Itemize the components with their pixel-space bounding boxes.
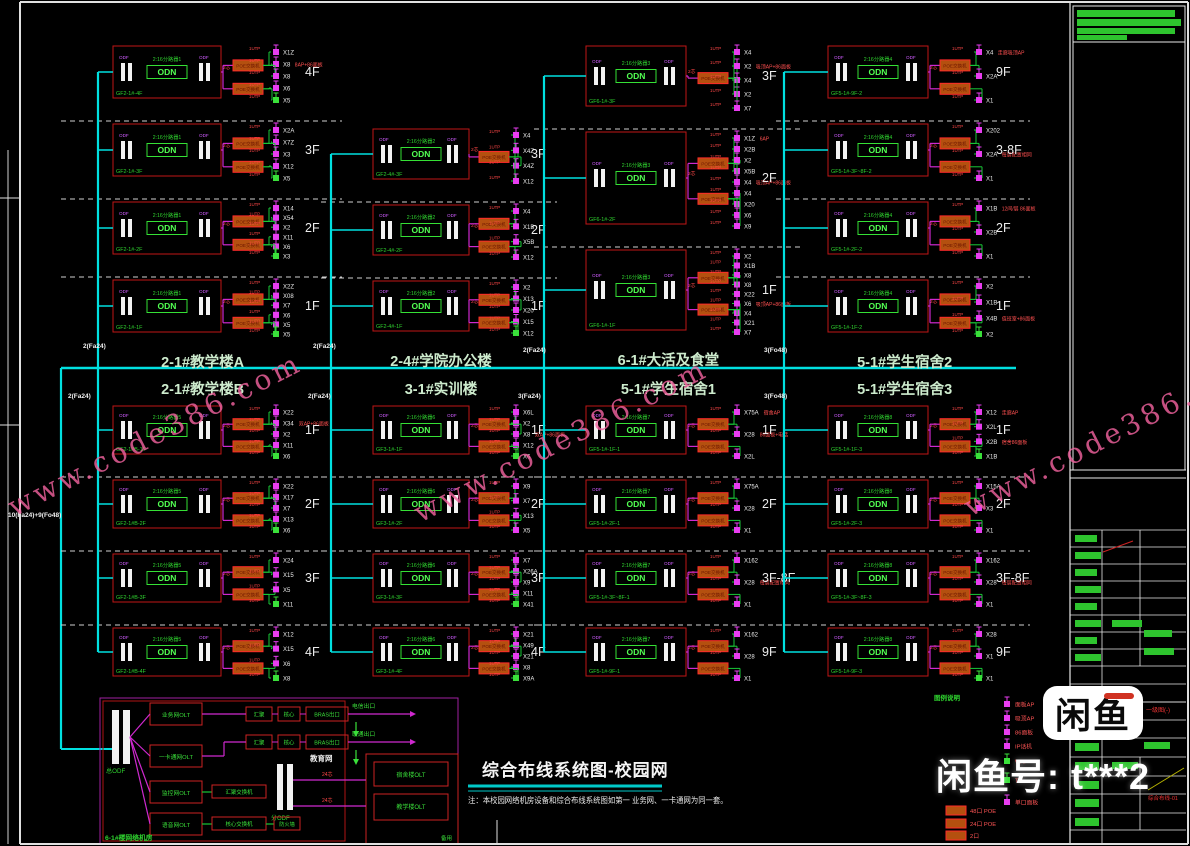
svg-text:POE交换机: POE交换机	[236, 140, 260, 147]
svg-text:2-1#教学楼B: 2-1#教学楼B	[161, 380, 244, 398]
svg-text:1UTP: 1UTP	[952, 576, 963, 581]
svg-text:5-1#学生宿舍1: 5-1#学生宿舍1	[621, 380, 716, 398]
svg-text:1UTP: 1UTP	[489, 417, 500, 422]
svg-text:GF5-1#-1F-3: GF5-1#-1F-3	[831, 447, 862, 453]
svg-text:1F: 1F	[996, 423, 1011, 437]
svg-text:2-1#教学楼A: 2-1#教学楼A	[161, 353, 245, 371]
svg-text:1UTP: 1UTP	[710, 60, 721, 65]
svg-text:GF5-1#-3F~8F-3: GF5-1#-3F~8F-3	[831, 595, 872, 601]
svg-text:2:16分路器7: 2:16分路器7	[622, 413, 651, 421]
svg-text:X9: X9	[523, 581, 531, 587]
svg-text:2:16分路器4: 2:16分路器4	[864, 211, 893, 219]
svg-text:2:16分路器8: 2:16分路器8	[864, 487, 893, 495]
svg-text:ODN: ODN	[158, 573, 177, 583]
svg-text:1UTP: 1UTP	[710, 598, 721, 603]
svg-text:2:16分路器2: 2:16分路器2	[407, 289, 436, 297]
svg-text:X08: X08	[283, 294, 294, 300]
svg-text:1UTP: 1UTP	[952, 296, 963, 301]
svg-text:ODF: ODF	[447, 635, 457, 640]
svg-text:86面板: 86面板	[1015, 729, 1033, 737]
svg-text:1UTP: 1UTP	[249, 46, 260, 51]
svg-text:2芯: 2芯	[471, 146, 479, 153]
svg-text:1UTP: 1UTP	[710, 198, 721, 203]
svg-text:9F: 9F	[996, 645, 1011, 659]
xianyu-account: 闲鱼号: t***2	[936, 748, 1150, 800]
svg-text:1UTP: 1UTP	[249, 554, 260, 559]
svg-text:1UTP: 1UTP	[489, 524, 500, 529]
svg-text:汇聚交换机: 汇聚交换机	[226, 788, 254, 796]
svg-text:1UTP: 1UTP	[710, 74, 721, 79]
svg-text:X2L: X2L	[744, 455, 755, 461]
svg-text:1UTP: 1UTP	[249, 221, 260, 226]
svg-text:1UTP: 1UTP	[249, 58, 260, 63]
svg-text:2-4#学院办公楼: 2-4#学院办公楼	[390, 352, 492, 370]
svg-text:1UTP: 1UTP	[249, 417, 260, 422]
svg-text:POE交换机: POE交换机	[943, 320, 967, 327]
svg-text:X5: X5	[283, 177, 291, 183]
svg-text:ODF: ODF	[906, 487, 916, 492]
svg-text:2:16分路器8: 2:16分路器8	[864, 635, 893, 643]
svg-text:1UTP: 1UTP	[952, 94, 963, 99]
svg-text:ODF: ODF	[199, 413, 209, 418]
svg-text:X9A: X9A	[523, 677, 534, 683]
svg-text:图例说明: 图例说明	[934, 693, 961, 702]
svg-text:防火墙: 防火墙	[279, 820, 295, 828]
svg-text:2芯: 2芯	[688, 68, 696, 75]
svg-text:ODF: ODF	[664, 635, 674, 640]
svg-text:X15: X15	[523, 320, 534, 326]
svg-text:1UTP: 1UTP	[489, 672, 500, 677]
svg-text:ODF: ODF	[447, 213, 457, 218]
svg-text:X13: X13	[523, 514, 534, 520]
svg-text:1UTP: 1UTP	[489, 439, 500, 444]
svg-text:X8: X8	[523, 666, 531, 672]
svg-text:3F-8F: 3F-8F	[996, 571, 1030, 585]
svg-text:ODF: ODF	[664, 59, 674, 64]
svg-text:1UTP: 1UTP	[489, 495, 500, 500]
svg-text:X7Z: X7Z	[283, 141, 294, 147]
svg-text:1UTP: 1UTP	[489, 650, 500, 655]
svg-text:1UTP: 1UTP	[710, 524, 721, 529]
svg-text:X6: X6	[283, 245, 291, 251]
svg-text:总ODF: 总ODF	[106, 767, 125, 775]
svg-text:ODF: ODF	[592, 487, 602, 492]
svg-text:ODF: ODF	[906, 413, 916, 418]
svg-text:X6: X6	[283, 87, 291, 93]
svg-text:吸顶AP+86面板: 吸顶AP+86面板	[756, 301, 791, 308]
svg-text:2(Fa24): 2(Fa24)	[68, 393, 91, 400]
svg-text:1UTP: 1UTP	[952, 650, 963, 655]
svg-text:2芯: 2芯	[471, 222, 479, 229]
svg-text:X24: X24	[283, 559, 294, 565]
svg-text:1F: 1F	[305, 423, 320, 437]
svg-text:2:16分路器1: 2:16分路器1	[153, 289, 182, 297]
svg-text:GF3-1#-4F: GF3-1#-4F	[376, 669, 403, 675]
svg-text:2:16分路器4: 2:16分路器4	[864, 133, 893, 141]
svg-text:GF2-1#-2F: GF2-1#-2F	[116, 247, 143, 253]
svg-text:GF5-1#-3F~8F-1: GF5-1#-3F~8F-1	[589, 595, 630, 601]
svg-text:ODN: ODN	[869, 67, 888, 77]
svg-text:ODF: ODF	[379, 289, 389, 294]
svg-text:1UTP: 1UTP	[489, 281, 500, 286]
svg-text:GF2-1#B-2F: GF2-1#B-2F	[116, 521, 147, 527]
svg-text:2:16分路器6: 2:16分路器6	[407, 635, 436, 643]
svg-text:ODN: ODN	[412, 225, 431, 235]
svg-text:1UTP: 1UTP	[710, 250, 721, 255]
svg-text:1UTP: 1UTP	[249, 280, 260, 285]
svg-text:ODF: ODF	[834, 635, 844, 640]
svg-text:GF2-1#B-3F: GF2-1#B-3F	[116, 595, 147, 601]
svg-text:2芯: 2芯	[688, 170, 696, 177]
svg-text:1UTP: 1UTP	[249, 202, 260, 207]
svg-text:X5: X5	[283, 99, 291, 105]
svg-text:X8: X8	[744, 283, 752, 289]
svg-text:X12: X12	[523, 332, 534, 338]
machine-room-diagram: 总ODF业务网OLT一卡通网OLT监控网OLT语音网OLT汇聚核心BRAS出口电…	[100, 698, 458, 844]
svg-text:2:16分路器6: 2:16分路器6	[407, 413, 436, 421]
svg-text:X5: X5	[283, 323, 291, 329]
svg-text:X1Z: X1Z	[283, 51, 294, 57]
svg-text:1UTP: 1UTP	[710, 143, 721, 148]
svg-text:X28: X28	[744, 507, 755, 513]
svg-text:1UTP: 1UTP	[952, 70, 963, 75]
svg-text:ODF: ODF	[592, 59, 602, 64]
svg-text:ODN: ODN	[412, 149, 431, 159]
svg-text:1UTP: 1UTP	[489, 316, 500, 321]
svg-text:X14: X14	[283, 207, 294, 213]
svg-text:ODF: ODF	[834, 289, 844, 294]
svg-text:1UTP: 1UTP	[952, 172, 963, 177]
svg-text:POE交换机: POE交换机	[482, 297, 506, 304]
svg-text:GF2-1#-1F: GF2-1#-1F	[116, 325, 143, 331]
svg-text:1UTP: 1UTP	[249, 94, 260, 99]
svg-text:X41: X41	[523, 603, 534, 609]
svg-text:ODF: ODF	[119, 289, 129, 294]
svg-text:X22: X22	[744, 293, 755, 299]
svg-text:1UTP: 1UTP	[952, 502, 963, 507]
svg-text:1F: 1F	[762, 423, 777, 437]
svg-text:X2: X2	[283, 226, 291, 232]
svg-text:ODN: ODN	[869, 573, 888, 583]
svg-text:ODF: ODF	[119, 133, 129, 138]
svg-text:X21: X21	[523, 633, 534, 639]
svg-text:1UTP: 1UTP	[489, 304, 500, 309]
svg-text:2芯: 2芯	[223, 422, 231, 429]
svg-text:GF2-1#B-1F: GF2-1#B-1F	[116, 447, 147, 453]
svg-text:1UTP: 1UTP	[249, 309, 260, 314]
svg-text:X12: X12	[523, 444, 534, 450]
svg-text:POE交换机: POE交换机	[943, 218, 967, 225]
svg-text:1UTP: 1UTP	[489, 144, 500, 149]
svg-text:X22: X22	[283, 411, 294, 417]
svg-text:1UTP: 1UTP	[710, 326, 721, 331]
svg-text:2:16分路器5: 2:16分路器5	[153, 413, 182, 421]
svg-text:X4Z: X4Z	[523, 164, 534, 170]
svg-text:2:16分路器3: 2:16分路器3	[622, 59, 651, 67]
svg-text:ODF: ODF	[199, 55, 209, 60]
svg-text:1UTP: 1UTP	[249, 657, 260, 662]
svg-text:1UTP: 1UTP	[952, 480, 963, 485]
svg-text:ODF: ODF	[119, 413, 129, 418]
svg-text:2:16分路器1: 2:16分路器1	[153, 55, 182, 63]
svg-text:1UTP: 1UTP	[710, 650, 721, 655]
svg-text:ODN: ODN	[158, 301, 177, 311]
svg-text:1UTP: 1UTP	[249, 672, 260, 677]
svg-text:综合布线-01: 综合布线-01	[1148, 794, 1178, 802]
svg-text:X21: X21	[744, 321, 755, 327]
svg-text:2(Fa24): 2(Fa24)	[83, 343, 106, 350]
svg-text:X1: X1	[986, 655, 994, 661]
svg-text:POE交换机: POE交换机	[943, 242, 967, 249]
svg-text:1UTP: 1UTP	[489, 129, 500, 134]
svg-text:2芯: 2芯	[223, 644, 231, 651]
svg-text:X2A: X2A	[283, 129, 294, 135]
svg-text:2F: 2F	[762, 171, 777, 185]
svg-text:值班室+86面板: 值班室+86面板	[1002, 316, 1035, 323]
svg-text:ODF: ODF	[199, 211, 209, 216]
svg-text:X28: X28	[744, 655, 755, 661]
svg-text:X28: X28	[986, 633, 997, 639]
svg-text:1UTP: 1UTP	[249, 299, 260, 304]
svg-text:X1: X1	[986, 529, 994, 535]
svg-text:3(Fo48): 3(Fo48)	[764, 347, 787, 354]
svg-text:1UTP: 1UTP	[249, 148, 260, 153]
svg-text:X75A: X75A	[744, 485, 759, 491]
svg-text:GF5-1#-9F-3: GF5-1#-9F-3	[831, 669, 862, 675]
svg-text:X2: X2	[986, 285, 994, 291]
svg-text:X12: X12	[283, 165, 294, 171]
svg-text:汇聚: 汇聚	[254, 711, 265, 719]
svg-text:ODF: ODF	[199, 487, 209, 492]
svg-text:3-8F: 3-8F	[996, 143, 1022, 157]
svg-text:GF2-4#-2F: GF2-4#-2F	[376, 248, 403, 254]
svg-text:X12: X12	[523, 180, 534, 186]
svg-text:2芯: 2芯	[688, 422, 696, 429]
svg-text:ODF: ODF	[664, 413, 674, 418]
svg-text:1UTP: 1UTP	[710, 628, 721, 633]
svg-text:1UTP: 1UTP	[489, 480, 500, 485]
svg-text:X7: X7	[283, 304, 291, 310]
svg-text:走廊吸顶AP: 走廊吸顶AP	[998, 50, 1025, 57]
svg-text:1UTP: 1UTP	[249, 70, 260, 75]
svg-text:1F: 1F	[305, 299, 320, 313]
svg-text:48口 POE: 48口 POE	[970, 808, 996, 815]
svg-text:1UTP: 1UTP	[249, 231, 260, 236]
svg-text:ODN: ODN	[627, 71, 646, 81]
svg-text:X54: X54	[283, 216, 294, 222]
svg-text:GF5-1#-1F-1: GF5-1#-1F-1	[589, 447, 620, 453]
svg-text:1UTP: 1UTP	[249, 524, 260, 529]
svg-text:ODN: ODN	[158, 647, 177, 657]
svg-text:GF2-4#-1F: GF2-4#-1F	[376, 324, 403, 330]
svg-text:1UTP: 1UTP	[710, 187, 721, 192]
svg-text:ODN: ODN	[869, 301, 888, 311]
svg-text:X4: X4	[523, 134, 531, 140]
building-7: ODN2:16分路器7ODFODFGF5-1#-1F-12芯POE交换机POE交…	[534, 368, 800, 683]
svg-text:ODN: ODN	[627, 285, 646, 295]
svg-text:X8: X8	[283, 75, 291, 81]
svg-text:2:16分路器7: 2:16分路器7	[622, 561, 651, 569]
svg-text:1UTP: 1UTP	[710, 269, 721, 274]
svg-text:1UTP: 1UTP	[710, 502, 721, 507]
svg-text:X8: X8	[523, 433, 531, 439]
svg-text:2:16分路器1: 2:16分路器1	[153, 133, 182, 141]
svg-text:ODF: ODF	[199, 635, 209, 640]
svg-text:1UTP: 1UTP	[710, 450, 721, 455]
svg-text:X4B: X4B	[986, 317, 997, 323]
svg-text:1UTP: 1UTP	[952, 598, 963, 603]
svg-text:1F: 1F	[762, 283, 777, 297]
svg-text:X1: X1	[744, 677, 752, 683]
svg-text:X9: X9	[744, 225, 752, 231]
svg-text:X4: X4	[986, 51, 994, 57]
svg-text:1UTP: 1UTP	[952, 202, 963, 207]
svg-text:1UTP: 1UTP	[249, 428, 260, 433]
svg-text:1UTP: 1UTP	[489, 220, 500, 225]
svg-text:2芯: 2芯	[930, 570, 938, 577]
svg-text:1UTP: 1UTP	[249, 250, 260, 255]
svg-text:24芯: 24芯	[322, 771, 333, 778]
svg-text:汇聚: 汇聚	[254, 739, 265, 747]
svg-text:X4: X4	[744, 312, 752, 318]
svg-text:GF5-1#-2F-1: GF5-1#-2F-1	[589, 521, 620, 527]
svg-text:X6: X6	[283, 529, 291, 535]
svg-text:X15: X15	[283, 573, 294, 579]
svg-text:1UTP: 1UTP	[710, 288, 721, 293]
svg-text:X11: X11	[523, 592, 534, 598]
svg-text:X7: X7	[523, 559, 531, 565]
svg-text:X17: X17	[283, 496, 294, 502]
svg-text:ODF: ODF	[592, 161, 602, 166]
svg-text:1UTP: 1UTP	[710, 279, 721, 284]
svg-text:ODN: ODN	[158, 67, 177, 77]
svg-text:ODF: ODF	[834, 211, 844, 216]
svg-text:GF5-1#-3F~8F-2: GF5-1#-3F~8F-2	[831, 169, 872, 175]
svg-text:1UTP: 1UTP	[249, 240, 260, 245]
svg-text:ODF: ODF	[199, 561, 209, 566]
svg-text:1UTP: 1UTP	[952, 435, 963, 440]
svg-text:1UTP: 1UTP	[249, 643, 260, 648]
svg-text:业务网OLT: 业务网OLT	[162, 711, 191, 719]
svg-text:2F: 2F	[996, 221, 1011, 235]
svg-text:2:16分路器5: 2:16分路器5	[153, 561, 182, 569]
svg-text:X5B: X5B	[523, 240, 534, 246]
svg-text:1UTP: 1UTP	[489, 251, 500, 256]
svg-text:ODN: ODN	[869, 499, 888, 509]
svg-text:ODN: ODN	[158, 499, 177, 509]
svg-text:2芯: 2芯	[471, 298, 479, 305]
svg-text:1UTP: 1UTP	[952, 148, 963, 153]
svg-text:ODF: ODF	[379, 561, 389, 566]
svg-text:1UTP: 1UTP	[249, 328, 260, 333]
svg-text:2:16分路器4: 2:16分路器4	[864, 55, 893, 63]
svg-text:监控网OLT: 监控网OLT	[162, 789, 191, 797]
svg-text:GF6-1#-1F: GF6-1#-1F	[589, 323, 616, 329]
svg-text:POE交换机: POE交换机	[482, 244, 506, 251]
building-8: ODN2:16分路器8ODFODFGF5-1#-1F-32芯POE交换机POE交…	[776, 368, 1032, 683]
svg-text:ODF: ODF	[199, 133, 209, 138]
svg-text:GF3-1#-2F: GF3-1#-2F	[376, 521, 403, 527]
svg-text:BRAS出口: BRAS出口	[314, 739, 339, 747]
svg-text:面板AP: 面板AP	[1015, 701, 1034, 709]
svg-text:2:16分路器7: 2:16分路器7	[622, 635, 651, 643]
svg-text:2芯: 2芯	[930, 496, 938, 503]
svg-text:X1: X1	[986, 255, 994, 261]
svg-text:X4: X4	[744, 192, 752, 198]
svg-text:X1: X1	[986, 677, 994, 683]
svg-text:X6: X6	[283, 455, 291, 461]
svg-text:X6L: X6L	[523, 411, 534, 417]
svg-text:X3: X3	[986, 507, 994, 513]
svg-text:GF2-4#-3F: GF2-4#-3F	[376, 172, 403, 178]
svg-text:ODF: ODF	[906, 211, 916, 216]
svg-text:ODF: ODF	[834, 133, 844, 138]
svg-text:1UTP: 1UTP	[952, 421, 963, 426]
svg-text:4F: 4F	[305, 645, 320, 659]
svg-text:3(Fo48): 3(Fo48)	[764, 393, 787, 400]
svg-text:ODF: ODF	[447, 413, 457, 418]
svg-text:ODN: ODN	[158, 223, 177, 233]
svg-text:ODF: ODF	[592, 413, 602, 418]
svg-text:5-1#学生宿舍3: 5-1#学生宿舍3	[857, 380, 952, 398]
svg-text:X8: X8	[283, 63, 291, 69]
svg-text:1UTP: 1UTP	[489, 175, 500, 180]
svg-text:ODF: ODF	[119, 561, 129, 566]
svg-text:X8: X8	[744, 274, 752, 280]
svg-text:ODF: ODF	[379, 213, 389, 218]
svg-text:1UTP: 1UTP	[489, 293, 500, 298]
svg-text:ODN: ODN	[412, 425, 431, 435]
svg-text:X12: X12	[523, 256, 534, 262]
svg-text:POE交换机: POE交换机	[943, 164, 967, 171]
svg-text:ODF: ODF	[906, 55, 916, 60]
svg-text:1UTP: 1UTP	[710, 480, 721, 485]
svg-text:X5: X5	[523, 529, 531, 535]
svg-text:ODF: ODF	[379, 635, 389, 640]
svg-text:2芯: 2芯	[930, 422, 938, 429]
svg-text:ODF: ODF	[199, 289, 209, 294]
svg-text:2(Fa24): 2(Fa24)	[523, 347, 546, 354]
svg-text:ODF: ODF	[664, 487, 674, 492]
svg-text:1UTP: 1UTP	[249, 318, 260, 323]
svg-text:POE交换机: POE交换机	[943, 86, 967, 93]
svg-text:X1: X1	[986, 177, 994, 183]
svg-text:X5: X5	[283, 588, 291, 594]
svg-text:1UTP: 1UTP	[952, 250, 963, 255]
svg-text:教育网: 教育网	[309, 753, 333, 763]
svg-text:X20: X20	[744, 203, 755, 209]
svg-text:2(Fa24): 2(Fa24)	[308, 393, 331, 400]
svg-text:10(Fa24)+9(Fo48): 10(Fa24)+9(Fo48)	[8, 512, 61, 519]
drawing-note: 注：本校园网络机房设备和综合布线系统图如第一 业务网、一卡通网为同一套。	[468, 795, 698, 806]
svg-text:2芯: 2芯	[223, 496, 231, 503]
drawing-title: 综合布线系统图-校园网	[482, 756, 669, 781]
svg-text:X6: X6	[283, 313, 291, 319]
svg-text:ODN: ODN	[412, 499, 431, 509]
svg-text:1UTP: 1UTP	[249, 450, 260, 455]
svg-text:3F: 3F	[305, 571, 320, 585]
svg-text:1F: 1F	[996, 299, 1011, 313]
svg-text:3F: 3F	[305, 143, 320, 157]
svg-text:核心: 核心	[284, 711, 295, 719]
svg-text:2F: 2F	[996, 497, 1011, 511]
svg-text:GF6-1#-3F: GF6-1#-3F	[589, 99, 616, 105]
svg-text:24口 POE: 24口 POE	[970, 821, 996, 828]
building-3: ODN2:16分路器3ODFODFGF6-1#-3F2芯POE交换机1UTPX4…	[534, 45, 800, 369]
svg-text:2:16分路器4: 2:16分路器4	[864, 289, 893, 297]
svg-text:1UTP: 1UTP	[952, 124, 963, 129]
svg-text:1UTP: 1UTP	[710, 165, 721, 170]
